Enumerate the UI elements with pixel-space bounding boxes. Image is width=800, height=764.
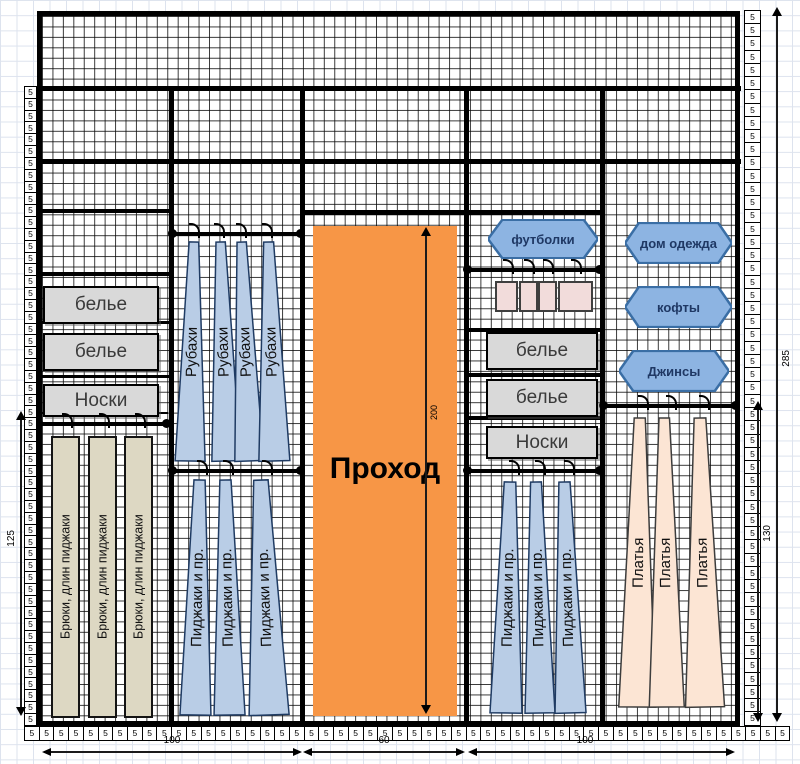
top-shelf-line [37,86,741,91]
ruler-cell: 5 [525,727,540,740]
closet-plan-canvas: Проход 200 белье белье Носки белье белье… [0,0,800,764]
ruler-cell: 5 [745,64,760,77]
ruler-cell: 5 [745,355,760,368]
ruler-cell: 5 [25,134,36,146]
ruler-cell: 5 [702,727,717,740]
ruler-cell: 5 [25,395,36,407]
ruler-cell: 5 [25,513,36,525]
ruler-cell: 5 [745,104,760,117]
arrow-up-icon [16,411,26,420]
ruler-cell: 5 [25,182,36,194]
ruler-cell: 5 [25,300,36,312]
ruler-cell: 5 [25,276,36,288]
ruler-cell: 5 [40,727,55,740]
arrow-up-icon [753,401,763,410]
trousers-item[interactable]: Брюки, длин пиджаки [51,436,80,718]
dim-label-left: 125 [6,530,17,547]
ruler-cell: 5 [745,262,760,275]
ruler-cell: 5 [25,99,36,111]
ruler-cell: 5 [231,727,246,740]
ruler-cell: 5 [113,727,128,740]
ruler-cell: 5 [99,727,114,740]
ruler-cell: 5 [745,37,760,50]
rail-end-dot [595,265,604,274]
ruler-cell: 5 [732,727,747,740]
dim-label-bottom-left: 100 [155,735,189,746]
ruler-cell: 5 [25,229,36,241]
dim-label-right-total: 285 [781,350,792,367]
ruler-cell: 5 [745,249,760,262]
ruler-cell: 5 [25,406,36,418]
ruler-cell: 5 [761,727,776,740]
ruler-cell: 5 [25,678,36,690]
ruler-cell: 5 [745,170,760,183]
trousers-item[interactable]: Брюки, длин пиджаки [124,436,153,718]
ruler-cell: 5 [745,157,760,170]
hanging-organizer-box[interactable] [558,281,593,312]
ruler-cell: 5 [25,631,36,643]
ruler-cell: 5 [25,454,36,466]
jacket-item[interactable]: Пиджаки и пр. [210,480,245,716]
underwear-box[interactable]: белье [486,332,598,370]
ruler-cell: 5 [25,122,36,134]
rail-end-dot [595,466,604,475]
arrow-right-icon [456,748,465,756]
socks-box[interactable]: Носки [486,426,598,459]
ruler-cell: 5 [745,11,760,24]
arrow-down-icon [753,713,763,722]
rail-end-dot [162,419,171,428]
dim-line-right-lower [757,404,759,720]
ruler-cell: 5 [25,146,36,158]
ruler-cell: 5 [25,727,40,740]
arrow-up-icon [772,7,782,16]
shirt-item[interactable]: Рубахи [253,242,290,462]
ruler-cell: 5 [540,727,555,740]
ruler-cell: 5 [511,727,526,740]
ruler-cell: 5 [745,223,760,236]
ruler-cell: 5 [25,217,36,229]
ruler-cell: 5 [25,170,36,182]
ruler-cell: 5 [628,727,643,740]
dress-item[interactable]: Платья [647,418,685,707]
ruler-cell: 5 [25,702,36,714]
ruler-cell: 5 [25,335,36,347]
ruler-cell: 5 [467,727,482,740]
ruler-cell: 5 [261,727,276,740]
ruler-cell: 5 [614,727,629,740]
ruler-cell: 5 [246,727,261,740]
ruler-cell: 5 [745,196,760,209]
ruler-cell: 5 [745,90,760,103]
rail-end-dot [168,466,177,475]
ruler-cell: 5 [128,727,143,740]
ruler-cell: 5 [745,24,760,37]
sweaters-hexagon[interactable]: кофты [625,286,732,328]
ruler-cell: 5 [643,727,658,740]
ruler-cell: 5 [25,714,36,725]
passage-height-dim-line [425,230,427,712]
ruler-cell: 5 [745,368,760,381]
ruler-cell: 5 [25,655,36,667]
dim-line-bottom-center [305,751,463,753]
ruler-cell: 5 [84,727,99,740]
divider-line-2 [300,86,305,722]
ruler-cell: 5 [745,329,760,342]
ruler-cell: 5 [25,288,36,300]
ruler-cell: 5 [745,183,760,196]
arrow-up-icon [421,227,431,236]
ruler-cell: 5 [745,130,760,143]
ruler-cell: 5 [54,727,69,740]
ruler-cell: 5 [290,727,305,740]
dress-item[interactable]: Платья [680,418,724,708]
ruler-bottom: 5555555555555555555555555555555555555555… [24,726,790,741]
ruler-cell: 5 [25,241,36,253]
ruler-cell: 5 [349,727,364,740]
ruler-cell: 5 [25,193,36,205]
ruler-cell: 5 [687,727,702,740]
shirt-item[interactable]: Рубахи [175,242,209,461]
ruler-cell: 5 [25,442,36,454]
arrow-left-icon [303,748,312,756]
dim-line-right-total [776,10,778,720]
ruler-cell: 5 [437,727,452,740]
hanging-organizer-box[interactable] [519,281,538,312]
ruler-cell: 5 [25,607,36,619]
arrow-down-icon [16,707,26,716]
hanging-organizer-box[interactable] [495,281,518,312]
ruler-cell: 5 [25,383,36,395]
ruler-cell: 5 [25,87,36,99]
ruler-cell: 5 [658,727,673,740]
arrow-down-icon [421,705,431,714]
ruler-cell: 5 [25,619,36,631]
ruler-cell: 5 [717,727,732,740]
dim-line-bottom-left [44,751,300,753]
shelf-line [37,209,172,213]
underwear-box[interactable]: белье [43,286,159,324]
ruler-cell: 5 [25,536,36,548]
jacket-item[interactable]: Пиджаки и пр. [549,482,586,714]
ruler-cell: 5 [745,77,760,90]
ruler-cell: 5 [25,489,36,501]
ruler-cell: 5 [25,430,36,442]
ruler-cell: 5 [69,727,84,740]
rail-end-dot [296,466,305,475]
passage-height-dim-label: 200 [429,405,439,420]
rail-end-dot [731,401,740,410]
ruler-cell: 5 [745,276,760,289]
ruler-cell: 5 [25,548,36,560]
ruler-cell: 5 [745,302,760,315]
ruler-cell: 5 [673,727,688,740]
shelf-line [37,272,172,276]
ruler-cell: 5 [25,324,36,336]
passage-label: Проход [313,452,457,486]
ruler-cell: 5 [25,572,36,584]
ruler-cell: 5 [746,727,761,740]
ruler-cell: 5 [216,727,231,740]
ruler-cell: 5 [25,466,36,478]
jacket-item[interactable]: Пиджаки и пр. [241,479,289,715]
dim-line-left [20,414,22,714]
arrow-down-icon [772,713,782,722]
ruler-cell: 5 [745,382,760,395]
hanging-rail [172,469,302,473]
ruler-cell: 5 [745,117,760,130]
rail-end-dot [463,265,472,274]
ruler-cell: 5 [305,727,320,740]
divider-line-1 [169,86,174,722]
ruler-cell: 5 [25,690,36,702]
ruler-cell: 5 [25,264,36,276]
ruler-cell: 5 [275,727,290,740]
ruler-cell: 5 [745,289,760,302]
ruler-cell: 5 [25,477,36,489]
ruler-cell: 5 [408,727,423,740]
rail-end-dot [463,466,472,475]
ruler-cell: 5 [25,158,36,170]
ruler-cell: 5 [25,347,36,359]
ruler-cell: 5 [25,371,36,383]
arrow-left-icon [42,748,51,756]
dim-label-right-lower: 130 [762,525,773,542]
ruler-cell: 5 [25,525,36,537]
hanging-organizer-box[interactable] [538,281,557,312]
ruler-cell: 5 [25,501,36,513]
ruler-cell: 5 [25,596,36,608]
ruler-cell: 5 [745,315,760,328]
dim-label-bottom-center: 60 [367,735,401,746]
ruler-cell: 5 [452,727,467,740]
dim-line-bottom-right [470,751,733,753]
mid-shelf-line [300,210,605,215]
ruler-cell: 5 [745,143,760,156]
ruler-cell: 5 [334,727,349,740]
ruler-left: 5555555555555555555555555555555555555555… [24,86,37,726]
home-clothes-hexagon[interactable]: дом одежда [625,222,732,264]
ruler-cell: 5 [25,418,36,430]
ruler-cell: 5 [187,727,202,740]
jeans-hexagon[interactable]: Джинсы [619,350,729,392]
ruler-cell: 5 [25,359,36,371]
ruler-cell: 5 [25,111,36,123]
shelf-line [467,373,602,377]
ruler-cell: 5 [25,253,36,265]
dim-label-bottom-right: 100 [568,735,602,746]
ruler-cell: 5 [745,210,760,223]
ruler-cell: 5 [202,727,217,740]
shelf-line [37,375,172,378]
ruler-cell: 5 [25,584,36,596]
ruler-cell: 5 [481,727,496,740]
ruler-cell: 5 [25,312,36,324]
ruler-cell: 5 [25,667,36,679]
arrow-right-icon [726,748,735,756]
second-shelf-line [37,159,741,164]
ruler-cell: 5 [422,727,437,740]
ruler-cell: 5 [745,51,760,64]
ruler-cell: 5 [25,643,36,655]
ruler-cell: 5 [745,236,760,249]
ruler-cell: 5 [496,727,511,740]
rail-end-dot [296,229,305,238]
trousers-item[interactable]: Брюки, длин пиджаки [88,436,117,718]
underwear-box[interactable]: белье [486,379,598,417]
ruler-cell: 5 [745,342,760,355]
ruler-cell: 5 [776,727,790,740]
underwear-box[interactable]: белье [43,333,159,371]
rail-end-dot [168,229,177,238]
ruler-cell: 5 [319,727,334,740]
arrow-right-icon [293,748,302,756]
arrow-left-icon [468,748,477,756]
ruler-cell: 5 [25,205,36,217]
divider-line-3 [464,86,469,722]
ruler-cell: 5 [25,560,36,572]
rail-end-dot [599,401,608,410]
tshirts-hexagon[interactable]: футболки [488,219,598,259]
